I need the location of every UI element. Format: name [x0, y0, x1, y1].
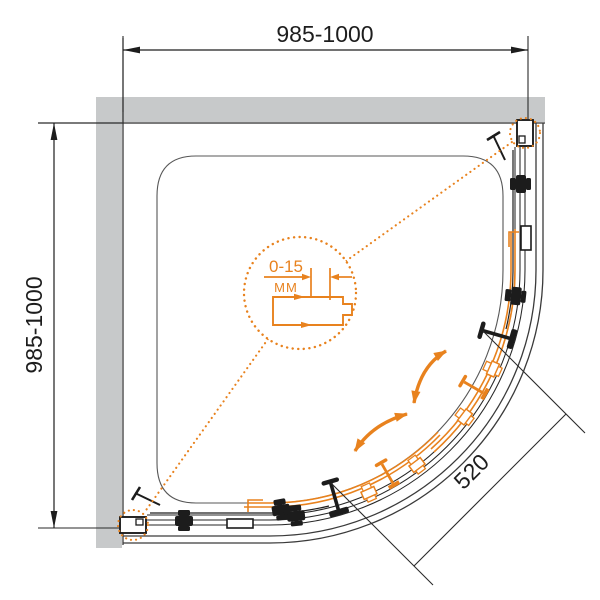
leader-to-top-profile [346, 142, 512, 261]
shower-enclosure-drawing: 520 985-1000 985-1000 0-15 MM [0, 0, 600, 600]
sliding-door-bottom [244, 432, 440, 512]
door-edge-cap [248, 500, 263, 512]
left-depth-value: 985-1000 [21, 276, 47, 373]
adjustment-unit: MM [274, 280, 298, 295]
wall-profile-top [517, 120, 533, 146]
adjustment-range-value: 0-15 [269, 257, 303, 276]
wall-profile-bottom [120, 517, 146, 533]
entry-width-value: 520 [449, 449, 495, 495]
left-wall [96, 97, 122, 548]
slide-direction-arrows [355, 351, 446, 451]
top-width-value: 985-1000 [276, 21, 373, 47]
top-wall [96, 97, 545, 122]
sliding-door-right [431, 229, 519, 452]
detail-callout: 0-15 MM [244, 237, 356, 349]
drawing-canvas: 520 985-1000 985-1000 0-15 MM [0, 0, 600, 600]
detail-circle [244, 237, 356, 349]
